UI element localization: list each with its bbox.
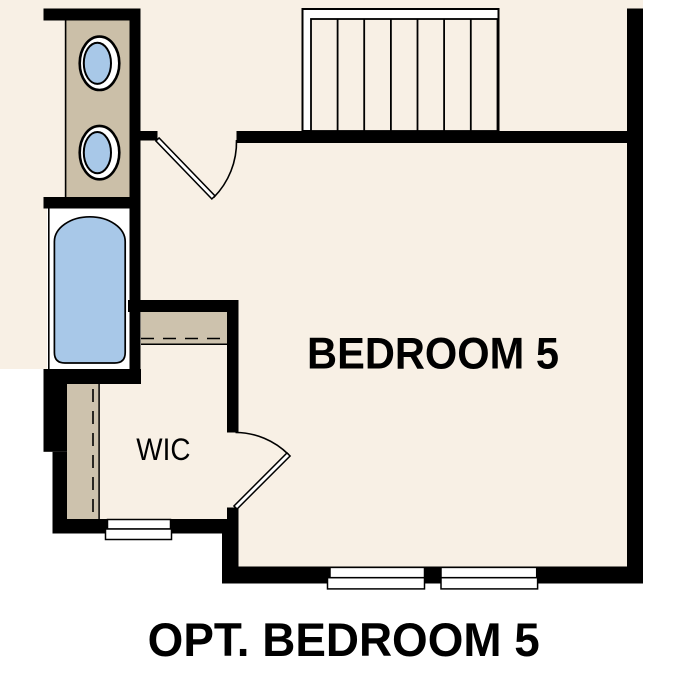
svg-text:OPT. BEDROOM 5: OPT. BEDROOM 5 (148, 614, 540, 667)
svg-text:BEDROOM 5: BEDROOM 5 (307, 329, 559, 379)
svg-text:WIC: WIC (136, 433, 190, 468)
